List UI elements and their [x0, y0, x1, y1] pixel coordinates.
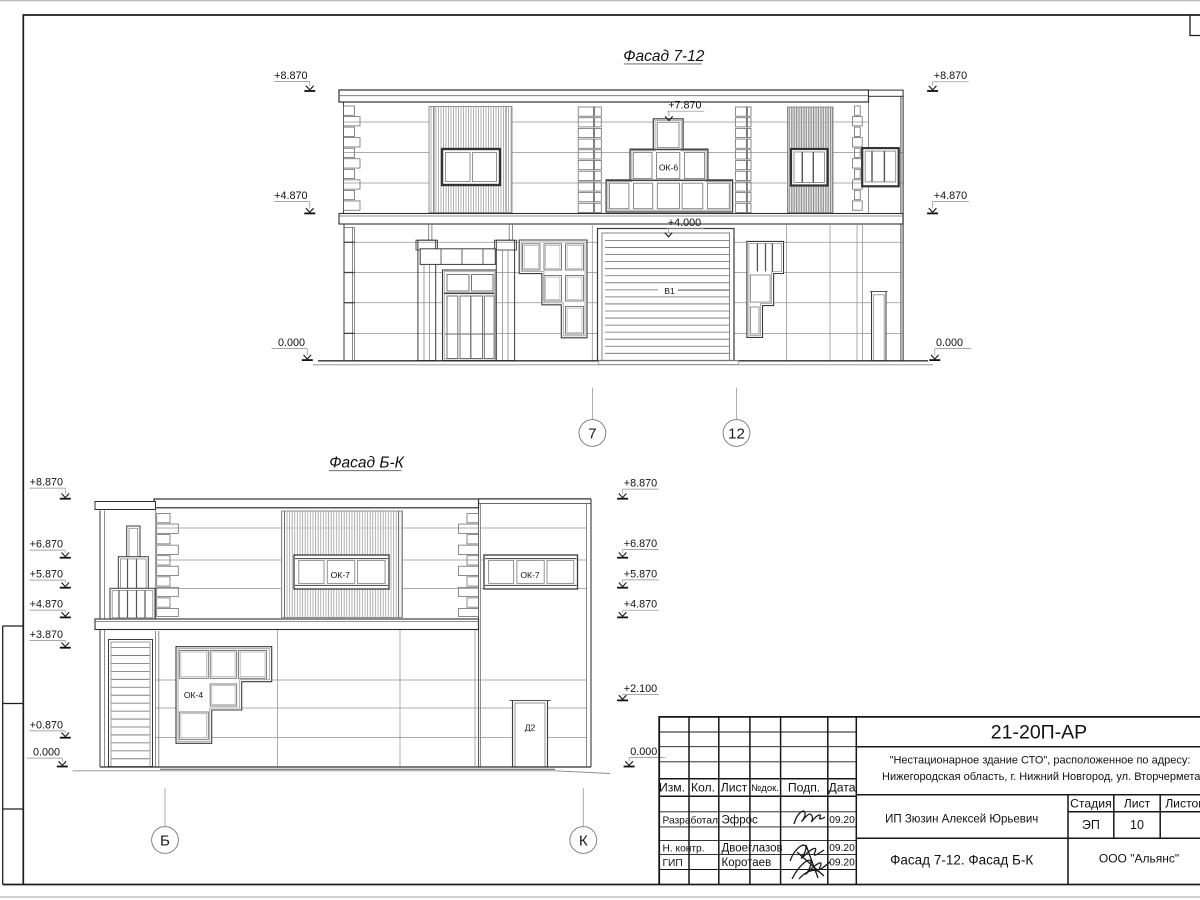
svg-text:Лист: Лист: [1124, 797, 1151, 811]
svg-text:0.000: 0.000: [33, 747, 60, 759]
svg-text:Стадия: Стадия: [1070, 797, 1112, 811]
svg-text:0.000: 0.000: [278, 337, 305, 349]
svg-text:Коротаев: Коротаев: [722, 857, 772, 869]
svg-text:ОК-7: ОК-7: [331, 570, 351, 580]
svg-text:Фасад 7-12. Фасад Б-К: Фасад 7-12. Фасад Б-К: [890, 853, 1033, 868]
svg-text:0.000: 0.000: [630, 746, 657, 758]
svg-text:Двоеглазов: Двоеглазов: [722, 843, 783, 855]
svg-text:Фасад Б-К: Фасад Б-К: [329, 455, 404, 472]
svg-text:+3.870: +3.870: [30, 629, 63, 641]
svg-text:Нижегородская область, г. Нижн: Нижегородская область, г. Нижний Новгоро…: [882, 771, 1200, 783]
svg-text:Листов: Листов: [1165, 797, 1200, 811]
svg-text:ЭП: ЭП: [1082, 818, 1100, 832]
svg-text:+2.100: +2.100: [624, 683, 657, 695]
svg-text:+4.870: +4.870: [934, 190, 967, 202]
svg-text:Б: Б: [160, 833, 170, 850]
svg-text:ГИП: ГИП: [663, 858, 683, 869]
svg-text:+4.000: +4.000: [668, 217, 701, 229]
svg-text:ОК-4: ОК-4: [184, 690, 204, 700]
svg-text:Кол.: Кол.: [691, 781, 715, 795]
svg-text:Д2: Д2: [525, 723, 536, 733]
svg-text:+5.870: +5.870: [30, 569, 63, 581]
svg-text:Подп.: Подп.: [788, 781, 820, 795]
svg-text:+7.870: +7.870: [668, 100, 701, 112]
svg-text:ОК-6: ОК-6: [659, 162, 679, 172]
svg-text:ОК-7: ОК-7: [520, 570, 540, 580]
svg-text:0.000: 0.000: [936, 337, 963, 349]
svg-text:Эфрос: Эфрос: [722, 815, 759, 827]
svg-text:Разработал: Разработал: [663, 815, 719, 827]
svg-text:Лист: Лист: [721, 781, 748, 795]
svg-text:10: 10: [1130, 818, 1144, 832]
svg-text:В1: В1: [664, 286, 675, 296]
svg-text:+6.870: +6.870: [30, 539, 63, 551]
svg-text:+4.870: +4.870: [30, 599, 63, 611]
svg-text:09.20: 09.20: [829, 858, 855, 869]
svg-text:+6.870: +6.870: [624, 538, 657, 550]
svg-text:+8.870: +8.870: [934, 70, 967, 82]
svg-text:+4.870: +4.870: [274, 190, 307, 202]
svg-text:+8.870: +8.870: [274, 70, 307, 82]
svg-text:Изм.: Изм.: [659, 781, 685, 795]
svg-text:+4.870: +4.870: [624, 599, 657, 611]
svg-text:Н. контр.: Н. контр.: [663, 844, 705, 855]
svg-text:+5.870: +5.870: [624, 568, 657, 580]
svg-text:№док.: №док.: [751, 783, 779, 794]
svg-text:+0.870: +0.870: [30, 719, 63, 731]
svg-text:Фасад 7-12: Фасад 7-12: [623, 48, 705, 65]
svg-text:ООО "Альянс": ООО "Альянс": [1099, 852, 1179, 866]
svg-text:7: 7: [588, 426, 596, 443]
svg-text:Дата: Дата: [829, 781, 856, 795]
svg-text:"Нестационарное здание СТО", р: "Нестационарное здание СТО", расположенн…: [890, 755, 1191, 767]
svg-text:ИП Зюзин Алексей Юрьевич: ИП Зюзин Алексей Юрьевич: [885, 814, 1038, 826]
svg-text:К: К: [579, 833, 588, 850]
svg-text:12: 12: [728, 426, 745, 443]
svg-text:+8.870: +8.870: [30, 477, 63, 489]
svg-text:+8.870: +8.870: [624, 478, 657, 490]
svg-text:09.20: 09.20: [829, 843, 855, 854]
svg-text:21-20П-АР: 21-20П-АР: [991, 722, 1087, 744]
svg-text:09.20: 09.20: [829, 815, 855, 826]
